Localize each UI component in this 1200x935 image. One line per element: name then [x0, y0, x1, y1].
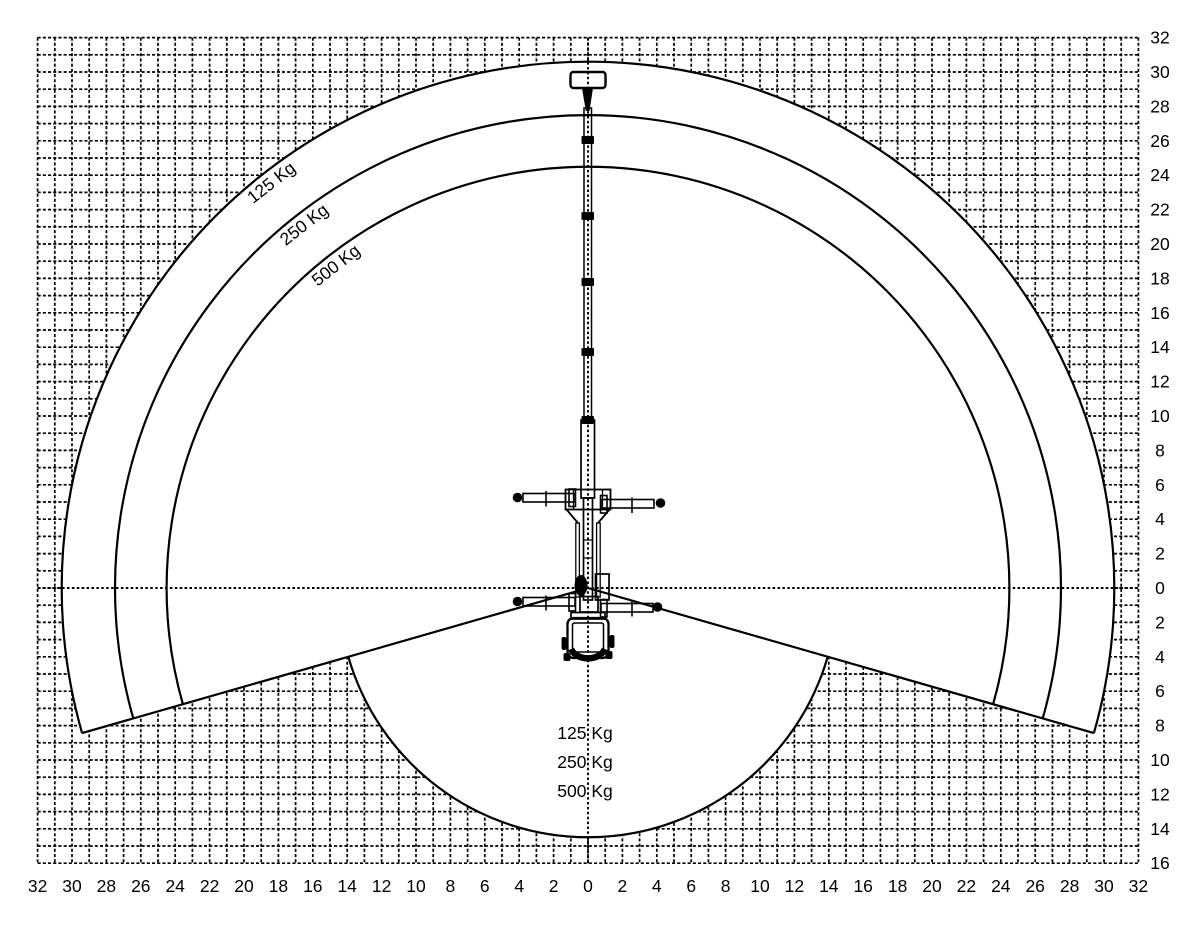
x-axis-tick-label: 24: [165, 876, 185, 896]
x-axis-tick-label: 10: [406, 876, 426, 896]
y-axis-tick-label: 10: [1150, 750, 1170, 770]
y-axis-tick-label: 10: [1150, 406, 1170, 426]
outrigger-pad: [656, 498, 666, 508]
working-envelope-load-chart: 125 Kg250 Kg500 Kg125 Kg250 Kg500 Kg3230…: [0, 0, 1200, 935]
bumper-corner: [606, 651, 613, 659]
x-axis-tick-label: 28: [97, 876, 116, 896]
y-axis-tick-label: 8: [1155, 440, 1165, 460]
side-mirror: [562, 637, 567, 650]
y-axis-tick-label: 30: [1150, 62, 1170, 82]
x-axis-tick-label: 14: [337, 876, 357, 896]
x-axis-tick-label: 6: [686, 876, 696, 896]
center-legend-line: 500 Kg: [557, 781, 612, 801]
x-axis-tick-label: 12: [372, 876, 391, 896]
y-axis-tick-label: 28: [1150, 96, 1169, 116]
center-legend-line: 250 Kg: [557, 752, 612, 772]
outrigger-pad: [513, 597, 523, 607]
y-axis-tick-label: 8: [1155, 716, 1165, 736]
x-axis-tick-label: 20: [922, 876, 942, 896]
outrigger-pad: [653, 602, 663, 612]
boom-joint-collar: [582, 212, 595, 220]
x-axis-tick-label: 2: [549, 876, 559, 896]
x-axis-tick-label: 32: [1129, 876, 1148, 896]
y-axis-tick-label: 32: [1150, 28, 1169, 48]
boom-joint-collar: [582, 136, 595, 144]
y-axis-tick-label: 4: [1155, 509, 1165, 529]
x-axis-tick-label: 8: [721, 876, 731, 896]
envelope-chart-svg: 125 Kg250 Kg500 Kg125 Kg250 Kg500 Kg3230…: [0, 0, 1200, 935]
y-axis-tick-label: 6: [1155, 475, 1165, 495]
y-axis-tick-label: 12: [1150, 372, 1169, 392]
x-axis-tick-label: 12: [785, 876, 804, 896]
y-axis-tick-label: 20: [1150, 234, 1170, 254]
x-axis-tick-label: 26: [1025, 876, 1044, 896]
x-axis-tick-label: 4: [652, 876, 662, 896]
y-axis-tick-label: 26: [1150, 131, 1169, 151]
x-axis-tick-label: 4: [514, 876, 524, 896]
y-axis-tick-label: 0: [1155, 578, 1165, 598]
x-axis-tick-label: 18: [888, 876, 907, 896]
outrigger-pad: [513, 493, 523, 503]
y-axis-tick-label: 2: [1155, 612, 1165, 632]
x-axis-tick-label: 22: [957, 876, 976, 896]
y-axis-tick-label: 2: [1155, 544, 1165, 564]
x-axis-tick-label: 20: [234, 876, 254, 896]
x-axis-tick-label: 16: [853, 876, 872, 896]
x-axis-tick-label: 18: [269, 876, 288, 896]
bumper-corner: [564, 653, 571, 661]
x-axis-tick-label: 32: [28, 876, 47, 896]
x-axis-tick-label: 2: [618, 876, 628, 896]
y-axis-tick-label: 4: [1155, 647, 1165, 667]
x-axis-tick-label: 8: [446, 876, 456, 896]
y-axis-tick-label: 24: [1150, 165, 1170, 185]
slew-pivot: [575, 575, 588, 596]
x-axis-tick-label: 6: [480, 876, 490, 896]
y-axis-tick-label: 12: [1150, 784, 1169, 804]
x-axis-tick-label: 26: [131, 876, 150, 896]
x-axis-tick-label: 16: [303, 876, 322, 896]
boom-joint-collar: [582, 278, 595, 286]
x-axis-tick-label: 30: [62, 876, 82, 896]
y-axis-tick-label: 14: [1150, 337, 1170, 357]
y-axis-tick-label: 16: [1150, 853, 1169, 873]
x-axis-tick-label: 24: [991, 876, 1011, 896]
y-axis-tick-label: 22: [1150, 200, 1169, 220]
y-axis-tick-label: 6: [1155, 681, 1165, 701]
x-axis-tick-label: 0: [583, 876, 593, 896]
x-axis-tick-label: 10: [750, 876, 770, 896]
y-axis-tick-label: 16: [1150, 303, 1169, 323]
x-axis-tick-label: 30: [1094, 876, 1114, 896]
boom-joint-collar: [582, 348, 595, 356]
side-mirror: [610, 635, 615, 648]
x-axis-tick-label: 22: [200, 876, 219, 896]
y-axis-tick-label: 14: [1150, 819, 1170, 839]
x-axis-tick-label: 14: [819, 876, 839, 896]
y-axis-tick-label: 18: [1150, 268, 1169, 288]
center-legend-line: 125 Kg: [557, 723, 612, 743]
x-axis-tick-label: 28: [1060, 876, 1079, 896]
